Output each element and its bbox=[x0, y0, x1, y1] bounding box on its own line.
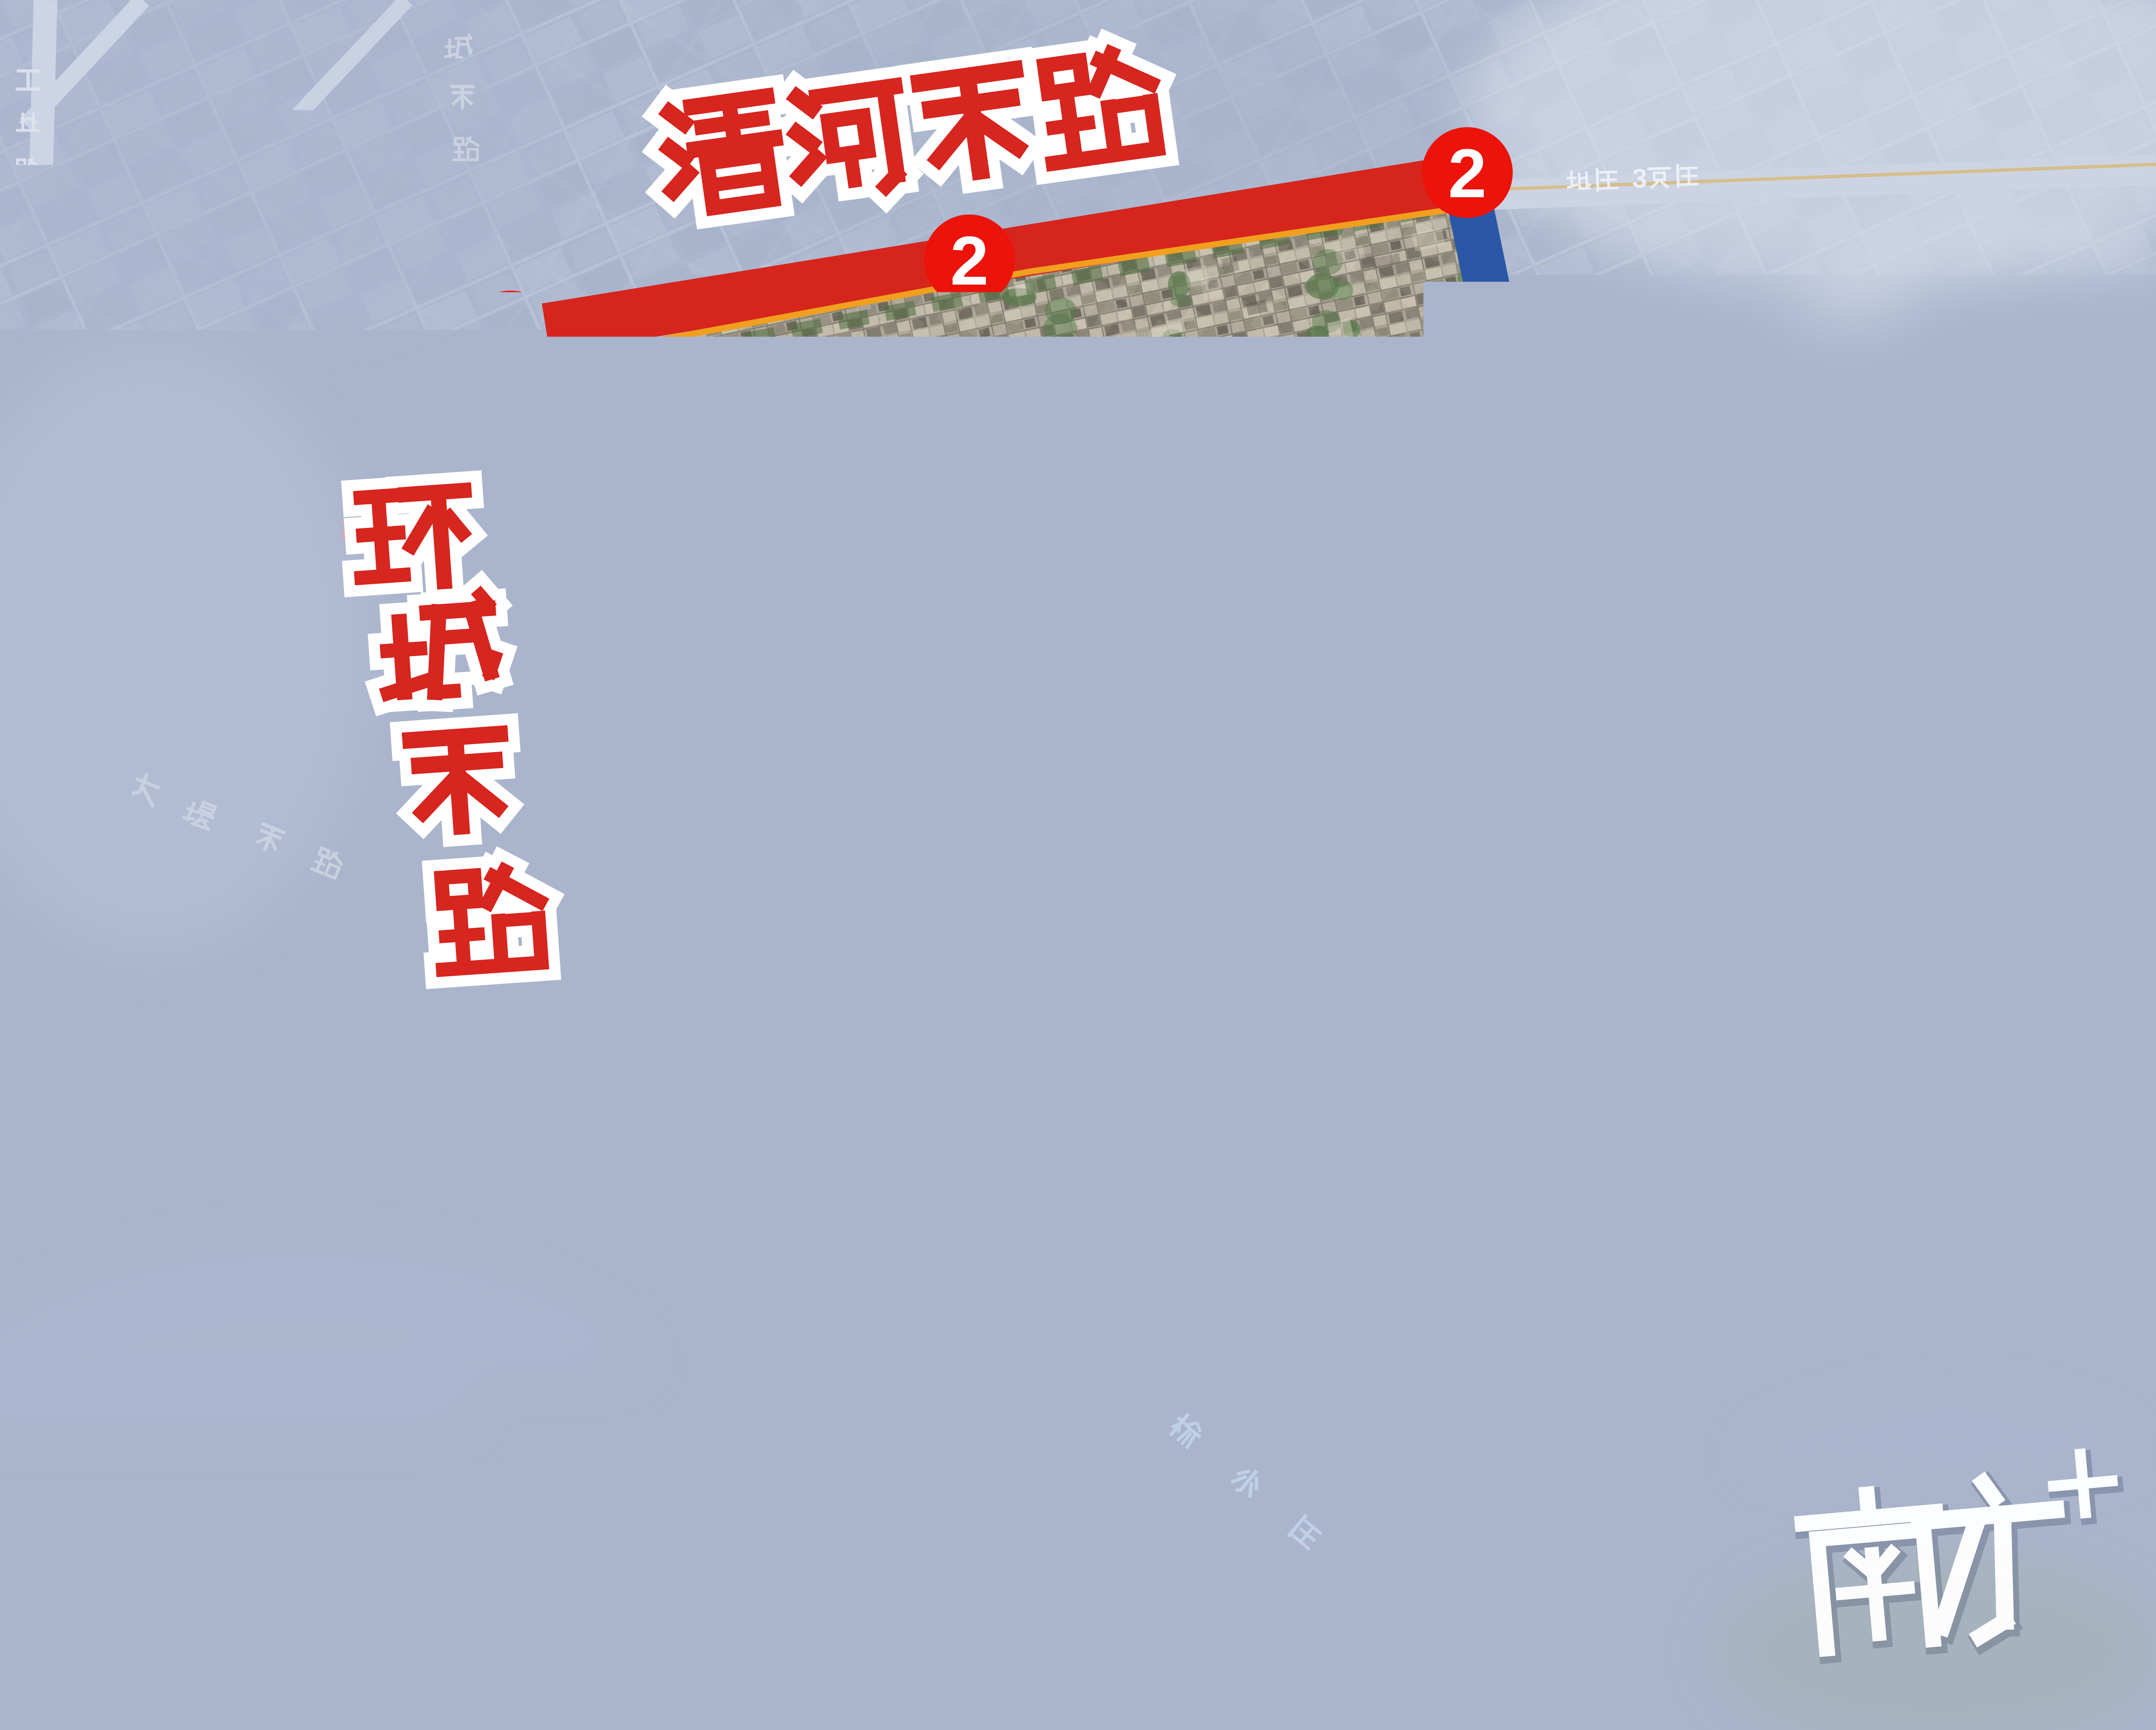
svg-text:E: E bbox=[327, 1535, 350, 1576]
svg-text:2: 2 bbox=[1169, 1298, 1207, 1376]
svg-text:2: 2 bbox=[1547, 701, 1586, 778]
svg-text:S: S bbox=[198, 1675, 219, 1717]
svg-text:2: 2 bbox=[570, 697, 609, 775]
svg-text:2: 2 bbox=[1534, 579, 1573, 656]
svg-text:N: N bbox=[192, 1387, 225, 1437]
svg-text:2: 2 bbox=[1448, 135, 1487, 212]
svg-text:3: 3 bbox=[1632, 164, 1647, 194]
svg-text:2: 2 bbox=[491, 298, 530, 375]
svg-text:2: 2 bbox=[950, 222, 989, 299]
svg-text:2: 2 bbox=[627, 955, 665, 1033]
svg-text:W: W bbox=[58, 1538, 91, 1576]
svg-text:2: 2 bbox=[1612, 1531, 1650, 1608]
